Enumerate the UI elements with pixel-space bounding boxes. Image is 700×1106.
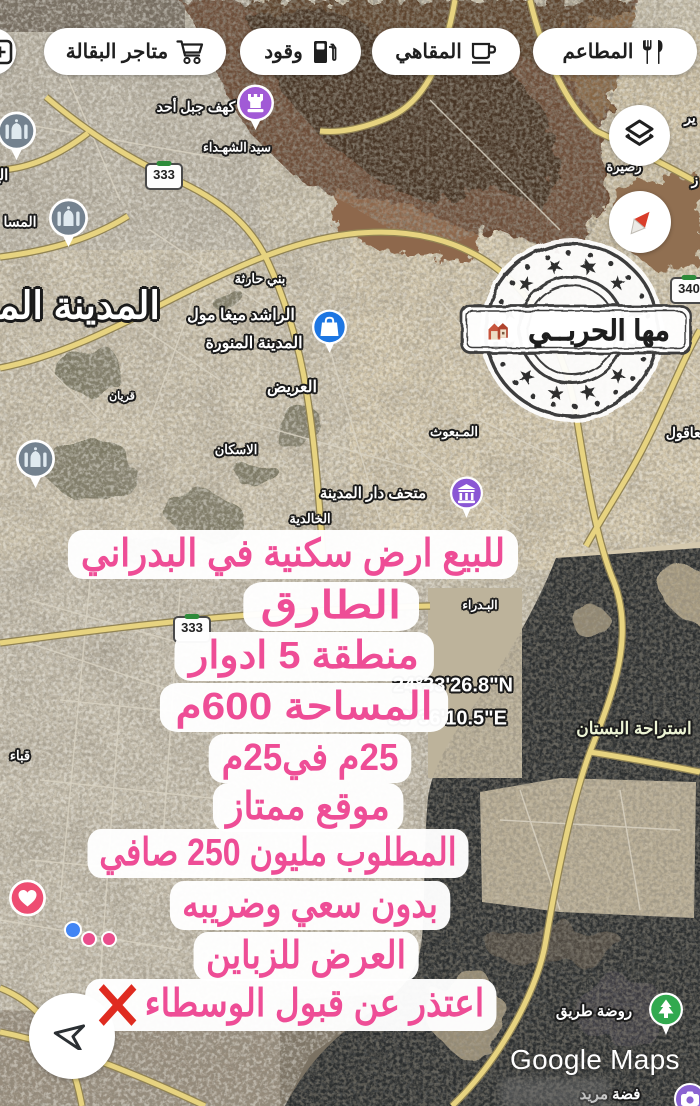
svg-text:مها الحربــي: مها الحربــي xyxy=(528,315,670,348)
